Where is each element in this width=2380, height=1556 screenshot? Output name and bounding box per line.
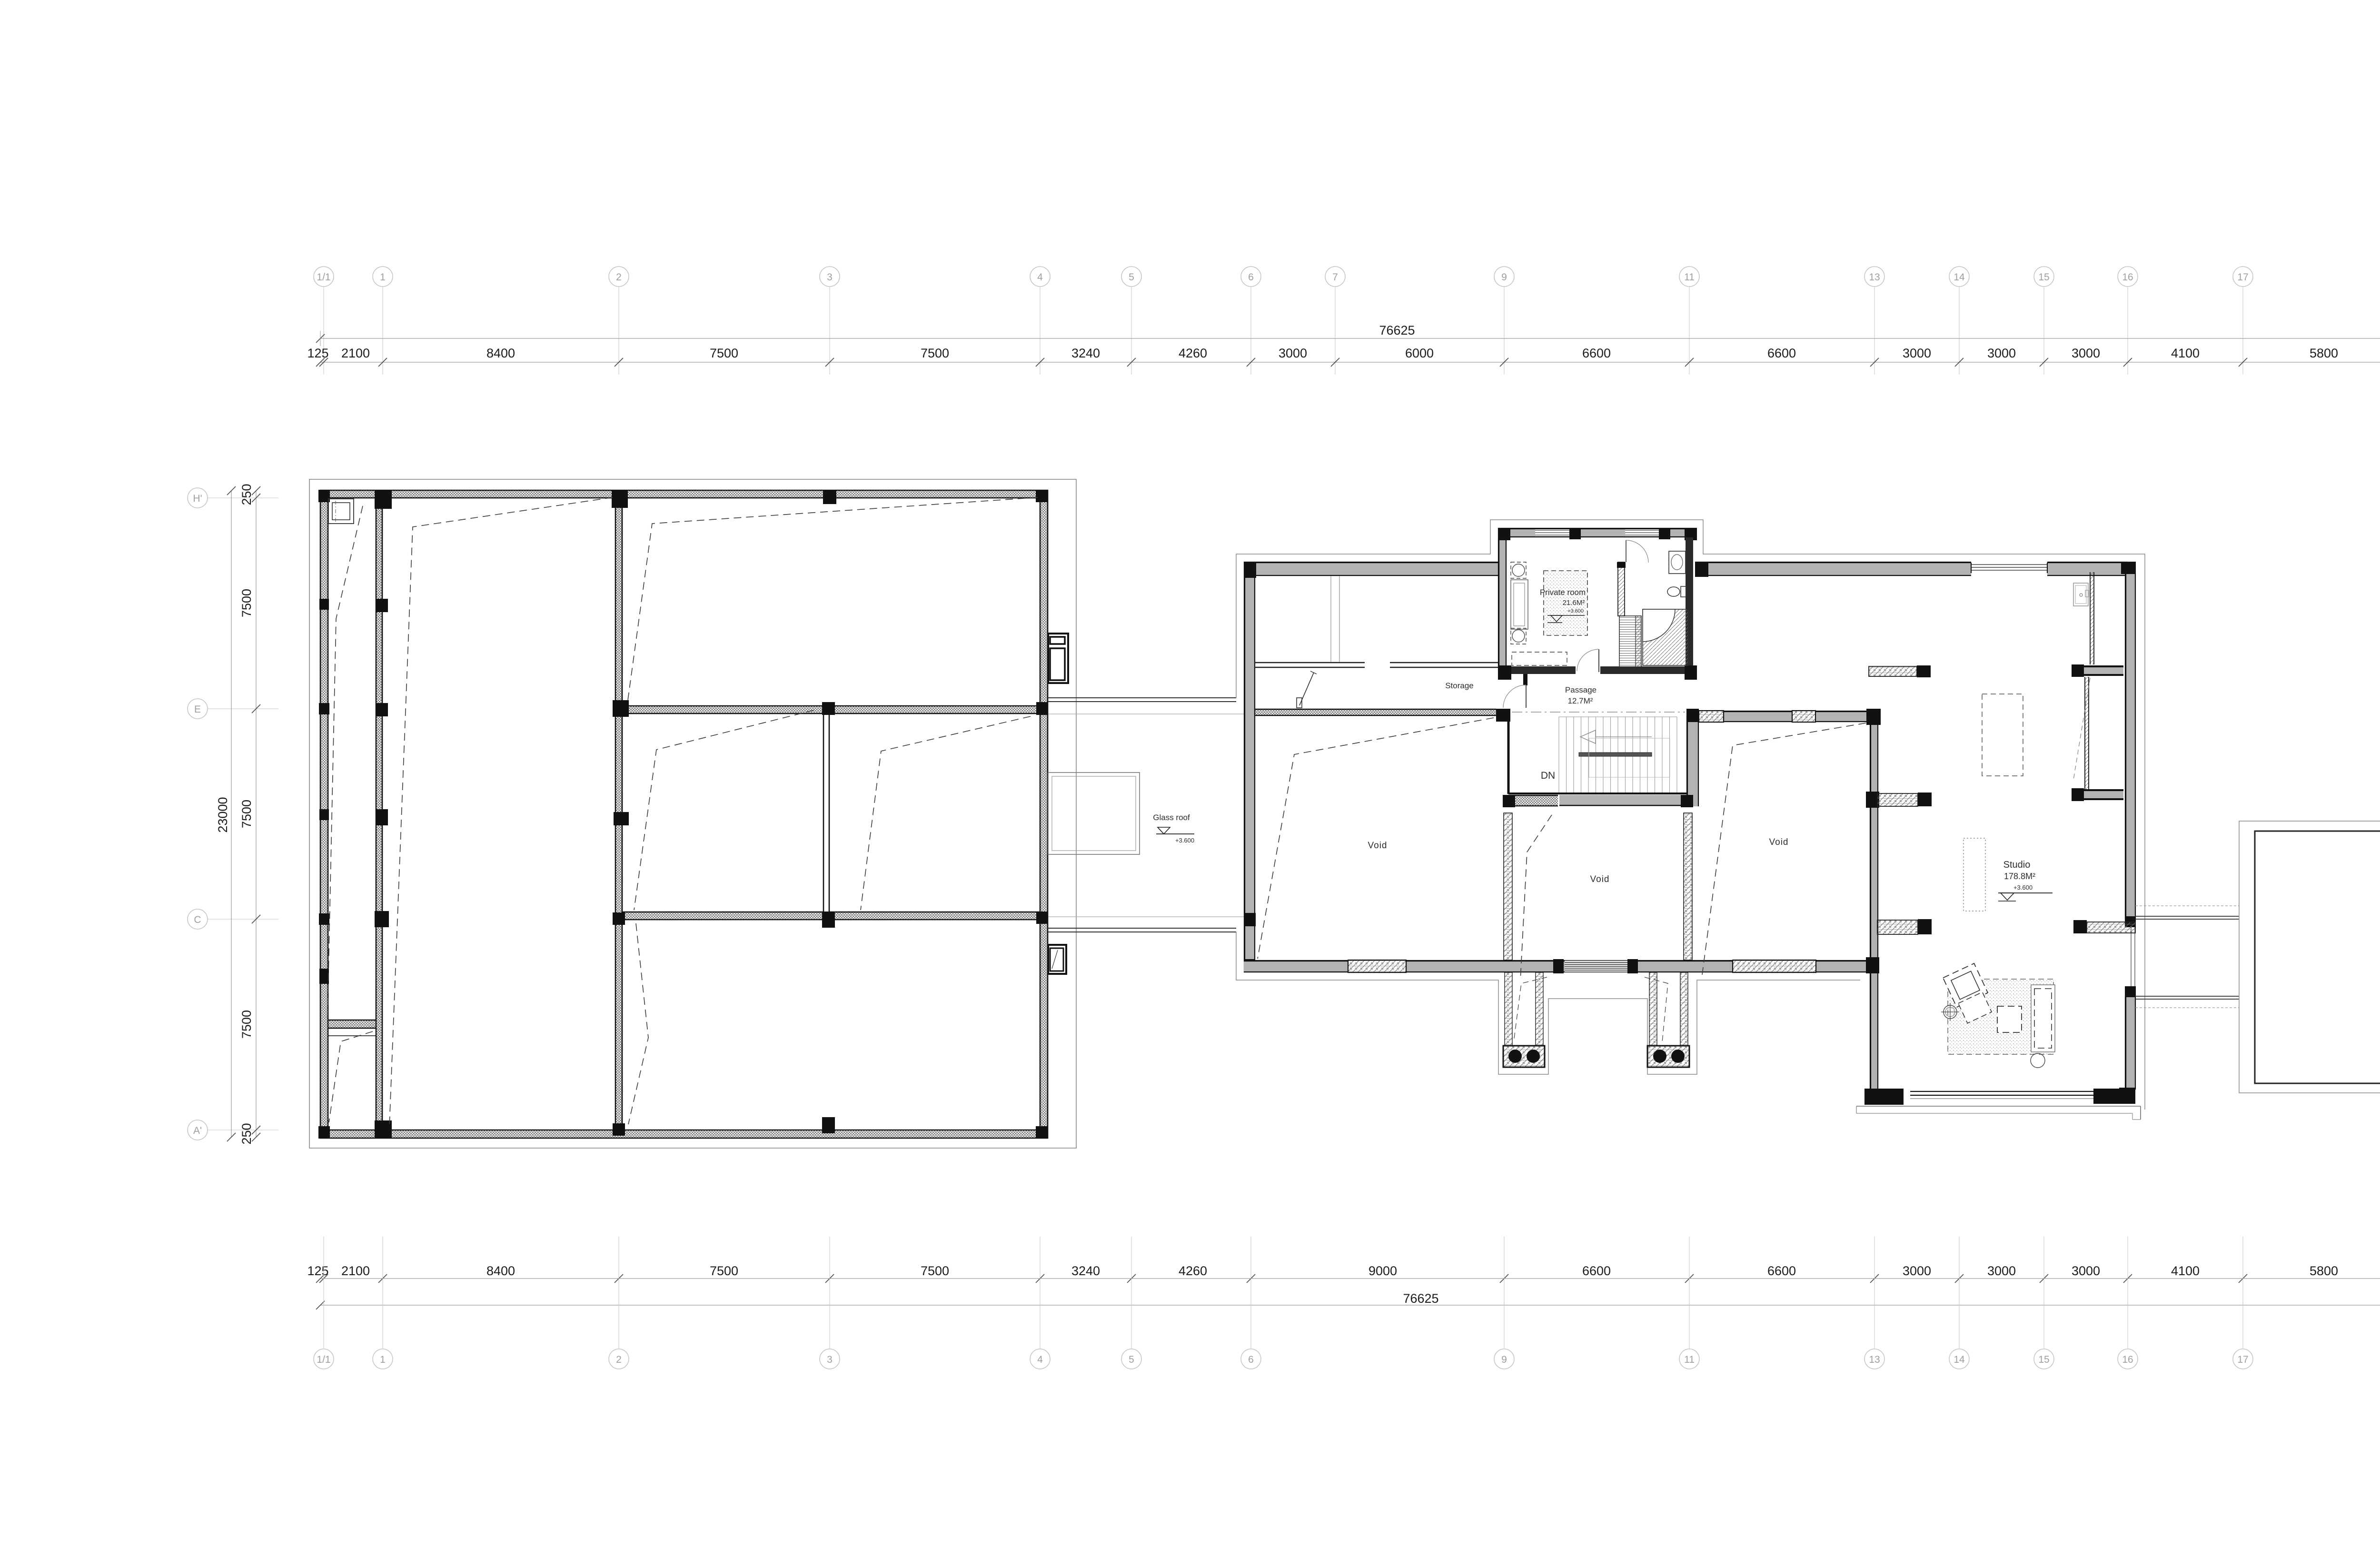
svg-text:76625: 76625	[1379, 323, 1415, 337]
svg-text:6600: 6600	[1582, 1264, 1611, 1278]
svg-text:6600: 6600	[1767, 346, 1796, 360]
svg-text:7500: 7500	[239, 589, 254, 617]
svg-text:3000: 3000	[1987, 346, 2016, 360]
svg-text:4100: 4100	[2171, 1264, 2200, 1278]
svg-text:178.8M²: 178.8M²	[2004, 872, 2035, 881]
svg-text:Passage: Passage	[1565, 685, 1597, 694]
svg-text:15: 15	[2038, 272, 2049, 283]
svg-text:3000: 3000	[1987, 1264, 2016, 1278]
svg-text:3000: 3000	[1279, 346, 1307, 360]
svg-text:250: 250	[239, 484, 254, 505]
svg-text:125: 125	[307, 346, 328, 360]
svg-text:7500: 7500	[710, 1264, 738, 1278]
svg-text:E: E	[194, 704, 201, 715]
svg-text:1: 1	[380, 1354, 386, 1365]
svg-text:Studio: Studio	[2003, 860, 2031, 870]
svg-text:4260: 4260	[1179, 346, 1207, 360]
svg-text:4100: 4100	[2171, 346, 2200, 360]
svg-text:23000: 23000	[216, 797, 230, 833]
svg-text:6600: 6600	[1767, 1264, 1796, 1278]
svg-text:C: C	[194, 914, 201, 925]
svg-text:3000: 3000	[1903, 1264, 1931, 1278]
svg-text:Void: Void	[1769, 837, 1789, 847]
svg-text:Glass roof: Glass roof	[1153, 813, 1190, 822]
svg-text:7500: 7500	[921, 346, 949, 360]
svg-text:76625: 76625	[1403, 1291, 1438, 1306]
svg-text:13: 13	[1869, 272, 1880, 283]
svg-text:+3.600: +3.600	[1175, 837, 1194, 844]
svg-text:11: 11	[1684, 1354, 1695, 1365]
svg-text:14: 14	[1954, 272, 1965, 283]
svg-text:17: 17	[2237, 272, 2248, 283]
svg-text:+3.600: +3.600	[1567, 608, 1584, 614]
svg-text:5: 5	[1129, 272, 1134, 283]
svg-text:1: 1	[380, 272, 386, 283]
svg-text:7500: 7500	[710, 346, 738, 360]
svg-text:8400: 8400	[486, 1264, 515, 1278]
svg-text:3240: 3240	[1071, 1264, 1100, 1278]
svg-text:6600: 6600	[1582, 346, 1611, 360]
svg-text:5800: 5800	[2310, 1264, 2338, 1278]
svg-text:3: 3	[827, 272, 833, 283]
svg-text:1/1: 1/1	[317, 272, 330, 283]
svg-text:12.7M²: 12.7M²	[1568, 696, 1593, 705]
svg-text:DN: DN	[1541, 770, 1555, 781]
svg-text:17: 17	[2237, 1354, 2248, 1365]
svg-text:6: 6	[1248, 272, 1254, 283]
svg-text:11: 11	[1684, 272, 1695, 283]
svg-text:7500: 7500	[921, 1264, 949, 1278]
svg-text:2100: 2100	[341, 346, 370, 360]
svg-text:15: 15	[2038, 1354, 2049, 1365]
svg-text:A': A'	[193, 1125, 202, 1136]
svg-text:Storage: Storage	[1445, 681, 1474, 690]
svg-text:4: 4	[1037, 272, 1043, 283]
svg-text:Private room: Private room	[1540, 588, 1586, 597]
svg-text:+3.600: +3.600	[2013, 884, 2033, 891]
svg-text:2100: 2100	[341, 1264, 370, 1278]
svg-text:3000: 3000	[2072, 346, 2100, 360]
svg-text:16: 16	[2122, 272, 2133, 283]
svg-text:9: 9	[1501, 1354, 1507, 1365]
svg-text:5: 5	[1129, 1354, 1134, 1365]
svg-text:250: 250	[239, 1123, 254, 1144]
svg-text:Void: Void	[1590, 874, 1610, 884]
svg-text:3240: 3240	[1071, 346, 1100, 360]
svg-text:5800: 5800	[2310, 346, 2338, 360]
svg-text:14: 14	[1954, 1354, 1965, 1365]
svg-text:4260: 4260	[1179, 1264, 1207, 1278]
svg-text:2: 2	[616, 1354, 622, 1365]
svg-text:H': H'	[193, 493, 202, 504]
svg-text:2: 2	[616, 272, 622, 283]
svg-text:7500: 7500	[239, 1010, 254, 1039]
svg-text:9: 9	[1501, 272, 1507, 283]
svg-text:Void: Void	[1368, 841, 1388, 851]
svg-text:125: 125	[307, 1264, 328, 1278]
svg-text:16: 16	[2122, 1354, 2133, 1365]
svg-text:3000: 3000	[1903, 346, 1931, 360]
svg-text:9000: 9000	[1368, 1264, 1397, 1278]
svg-text:1/1: 1/1	[317, 1354, 330, 1365]
svg-text:7500: 7500	[239, 800, 254, 828]
svg-text:6: 6	[1248, 1354, 1254, 1365]
svg-text:6000: 6000	[1405, 346, 1434, 360]
svg-text:7: 7	[1332, 272, 1338, 283]
svg-text:3000: 3000	[2072, 1264, 2100, 1278]
svg-text:8400: 8400	[486, 346, 515, 360]
svg-text:21.6M²: 21.6M²	[1563, 599, 1585, 607]
svg-text:4: 4	[1037, 1354, 1043, 1365]
svg-text:13: 13	[1869, 1354, 1880, 1365]
svg-text:3: 3	[827, 1354, 833, 1365]
